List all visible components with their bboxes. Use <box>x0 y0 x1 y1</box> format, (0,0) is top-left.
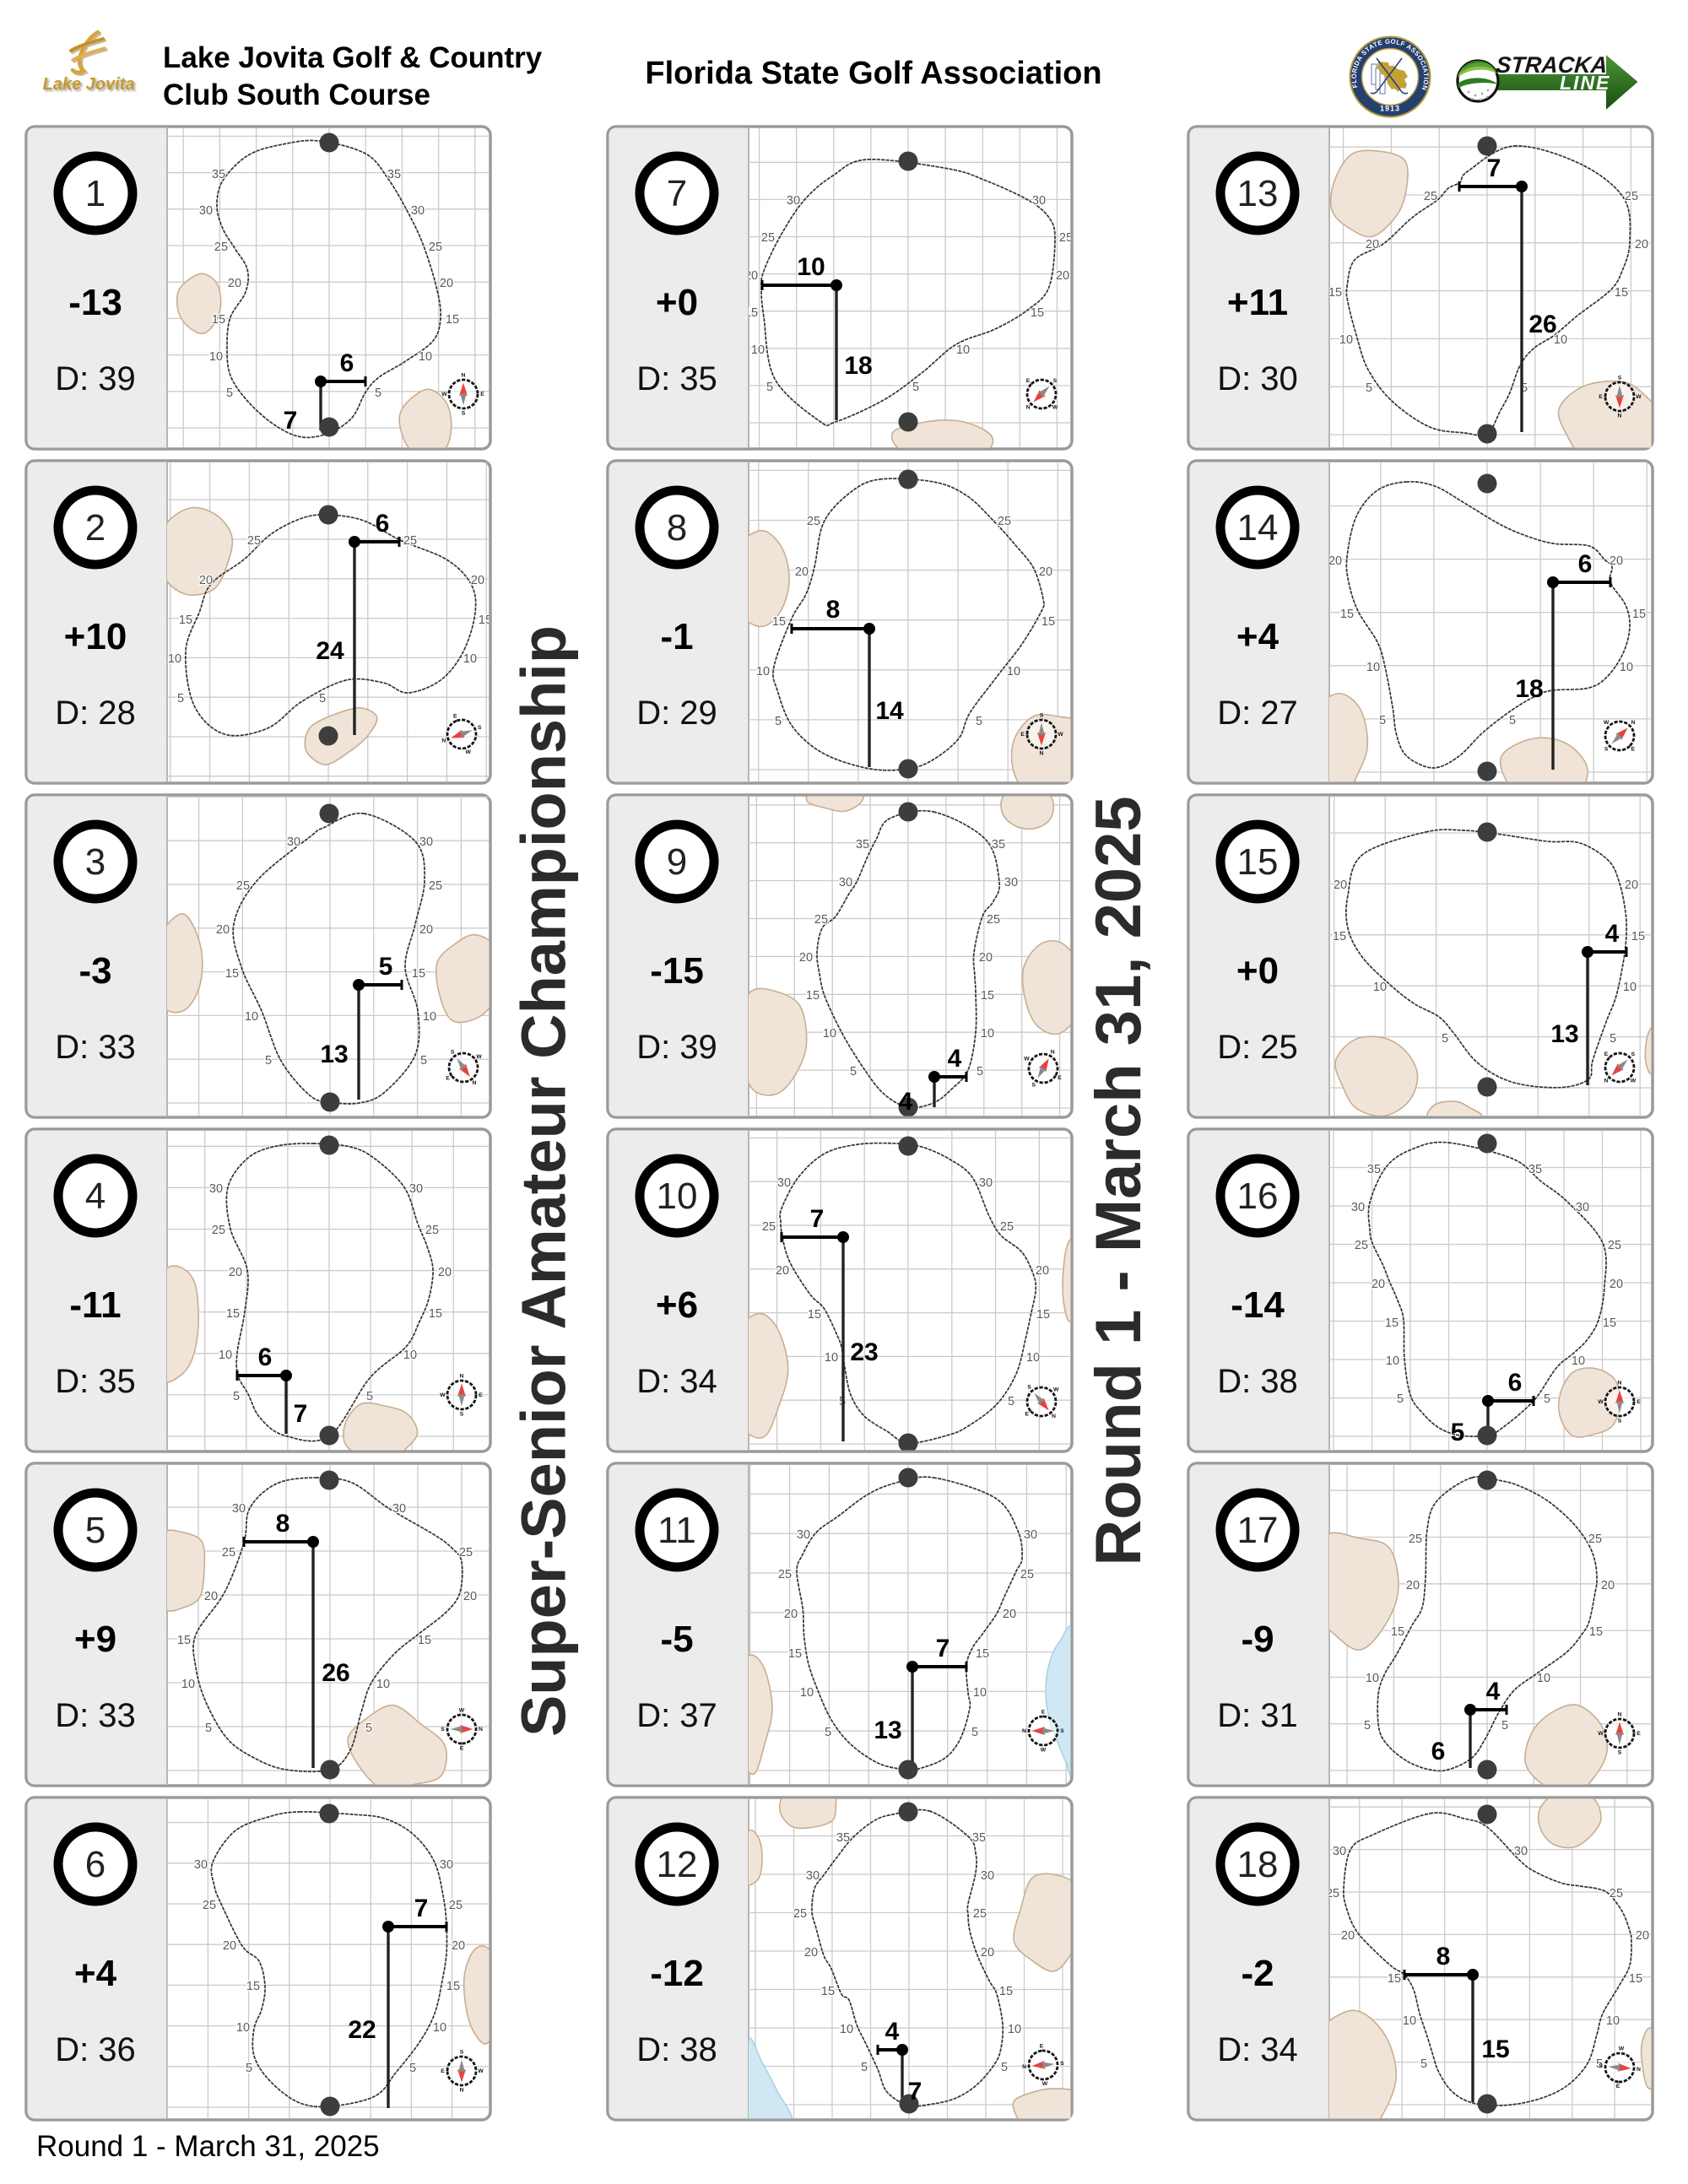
svg-text:35: 35 <box>836 1831 850 1845</box>
svg-text:20: 20 <box>1406 1579 1420 1592</box>
svg-text:N: N <box>462 372 466 378</box>
svg-text:15: 15 <box>1615 286 1628 300</box>
svg-text:15: 15 <box>226 1307 240 1321</box>
svg-text:E: E <box>1637 1399 1641 1405</box>
svg-text:5: 5 <box>177 692 184 705</box>
svg-text:5: 5 <box>775 715 782 728</box>
svg-text:20: 20 <box>463 1590 477 1603</box>
svg-text:D: 39: D: 39 <box>636 1029 717 1066</box>
svg-text:5: 5 <box>1008 1395 1014 1408</box>
svg-text:15: 15 <box>788 1647 802 1661</box>
svg-text:25: 25 <box>1625 190 1638 203</box>
svg-text:8: 8 <box>276 1510 290 1538</box>
svg-text:4: 4 <box>885 2018 900 2046</box>
svg-text:25: 25 <box>1424 190 1437 203</box>
svg-text:E: E <box>479 1392 483 1398</box>
svg-text:5: 5 <box>976 715 982 728</box>
svg-text:15: 15 <box>981 989 994 1003</box>
svg-text:W: W <box>1598 1731 1604 1737</box>
svg-text:5: 5 <box>233 1390 240 1403</box>
svg-text:10: 10 <box>433 2021 446 2035</box>
svg-text:E: E <box>1026 378 1031 384</box>
svg-text:18: 18 <box>1237 1844 1279 1885</box>
svg-text:E: E <box>446 1076 450 1082</box>
svg-text:15: 15 <box>976 1647 989 1661</box>
svg-text:W: W <box>440 1392 446 1398</box>
svg-text:5: 5 <box>1544 1392 1550 1406</box>
svg-text:10: 10 <box>840 2023 853 2036</box>
svg-text:N: N <box>1040 750 1044 756</box>
svg-text:25: 25 <box>1608 1239 1621 1252</box>
svg-text:15: 15 <box>418 1634 431 1647</box>
svg-text:5: 5 <box>1420 2057 1427 2071</box>
svg-text:20: 20 <box>1328 554 1342 568</box>
svg-text:30: 30 <box>797 1528 810 1542</box>
svg-text:25: 25 <box>403 534 417 548</box>
svg-text:5: 5 <box>265 1054 272 1068</box>
svg-text:5: 5 <box>366 1390 373 1403</box>
svg-text:W: W <box>1024 1057 1030 1062</box>
svg-text:30: 30 <box>199 204 213 218</box>
svg-text:15: 15 <box>808 1308 821 1322</box>
svg-text:25: 25 <box>973 1907 987 1921</box>
svg-text:E: E <box>1040 2043 1044 2049</box>
svg-text:E: E <box>1631 747 1636 753</box>
svg-text:S: S <box>1031 1082 1036 1088</box>
svg-text:W: W <box>1631 1078 1637 1084</box>
svg-text:10: 10 <box>181 1678 195 1691</box>
svg-text:25: 25 <box>814 913 828 927</box>
svg-text:W: W <box>441 392 447 397</box>
svg-text:13: 13 <box>1237 173 1279 214</box>
svg-text:15: 15 <box>1589 1625 1603 1639</box>
svg-text:15: 15 <box>1041 615 1055 629</box>
svg-text:7: 7 <box>284 407 298 435</box>
svg-text:30: 30 <box>981 1869 994 1883</box>
svg-text:D: 37: D: 37 <box>636 1697 717 1734</box>
svg-text:S: S <box>1604 747 1609 753</box>
svg-text:10: 10 <box>1386 1354 1399 1368</box>
svg-text:2: 2 <box>85 507 105 549</box>
svg-text:D: 36: D: 36 <box>55 2031 136 2068</box>
svg-text:30: 30 <box>419 835 433 849</box>
svg-text:10: 10 <box>423 1010 436 1024</box>
svg-text:20: 20 <box>1610 1278 1623 1291</box>
svg-text:5: 5 <box>1001 2061 1008 2074</box>
svg-text:10: 10 <box>236 2021 250 2035</box>
svg-text:S: S <box>1618 1418 1622 1424</box>
svg-text:25: 25 <box>425 1224 439 1237</box>
svg-text:S: S <box>1040 712 1044 718</box>
svg-text:W: W <box>1604 720 1610 726</box>
svg-text:15: 15 <box>1333 930 1346 943</box>
svg-text:20: 20 <box>1056 269 1069 283</box>
svg-text:13: 13 <box>874 1716 901 1744</box>
svg-text:12: 12 <box>657 1844 698 1885</box>
svg-text:10: 10 <box>1623 981 1637 994</box>
svg-text:+11: +11 <box>1227 282 1288 323</box>
svg-text:15: 15 <box>1385 1316 1399 1330</box>
svg-text:15: 15 <box>1629 1972 1642 1986</box>
svg-text:5: 5 <box>1610 1032 1616 1046</box>
svg-text:6: 6 <box>258 1343 273 1371</box>
svg-text:W: W <box>1636 394 1642 400</box>
svg-text:10: 10 <box>1007 665 1020 678</box>
svg-text:35: 35 <box>387 168 401 181</box>
svg-text:5: 5 <box>365 1722 372 1735</box>
svg-text:35: 35 <box>972 1831 986 1845</box>
svg-text:10: 10 <box>1339 333 1353 347</box>
svg-text:20: 20 <box>1003 1608 1016 1621</box>
svg-text:Lake Jovita: Lake Jovita <box>43 75 135 93</box>
svg-text:30: 30 <box>979 1176 993 1190</box>
svg-text:15: 15 <box>429 1307 442 1321</box>
svg-text:5: 5 <box>85 1510 105 1551</box>
svg-text:35: 35 <box>212 168 225 181</box>
svg-text:7: 7 <box>414 1895 429 1922</box>
svg-text:4: 4 <box>1486 1678 1501 1706</box>
svg-text:N: N <box>1604 1078 1609 1084</box>
svg-text:15: 15 <box>1631 930 1645 943</box>
svg-text:15: 15 <box>806 989 820 1003</box>
svg-text:D: 35: D: 35 <box>55 1363 136 1400</box>
svg-text:N: N <box>460 1373 464 1379</box>
svg-text:9: 9 <box>667 841 687 883</box>
svg-text:15: 15 <box>1328 286 1342 300</box>
svg-text:S: S <box>460 1411 464 1417</box>
svg-text:D: 35: D: 35 <box>636 360 717 397</box>
svg-text:30: 30 <box>777 1176 791 1190</box>
svg-text:11: 11 <box>657 1510 696 1551</box>
svg-text:5: 5 <box>319 692 326 705</box>
svg-text:26: 26 <box>322 1659 349 1687</box>
svg-text:25: 25 <box>236 879 250 893</box>
svg-text:15: 15 <box>1391 1625 1404 1639</box>
svg-text:20: 20 <box>440 277 453 290</box>
svg-text:D: 33: D: 33 <box>55 1697 136 1734</box>
svg-text:30: 30 <box>411 204 425 218</box>
svg-text:20: 20 <box>204 1590 218 1603</box>
svg-text:5: 5 <box>861 2061 868 2074</box>
svg-text:S: S <box>441 1727 445 1733</box>
svg-text:10: 10 <box>219 1349 232 1362</box>
svg-text:D: 28: D: 28 <box>55 695 136 732</box>
svg-text:14: 14 <box>875 697 904 725</box>
svg-text:D: 34: D: 34 <box>636 1363 717 1400</box>
svg-text:10: 10 <box>657 1176 698 1217</box>
svg-text:-12: -12 <box>650 1953 704 1994</box>
svg-text:S: S <box>1027 1385 1031 1391</box>
svg-text:30: 30 <box>1024 1528 1037 1542</box>
svg-text:30: 30 <box>232 1502 246 1516</box>
svg-text:5: 5 <box>1451 1419 1465 1446</box>
svg-text:4: 4 <box>85 1176 105 1217</box>
svg-text:N: N <box>1618 1711 1622 1717</box>
svg-text:25: 25 <box>212 1224 225 1237</box>
svg-text:E: E <box>441 2068 445 2074</box>
svg-text:25: 25 <box>247 534 261 548</box>
svg-text:7: 7 <box>810 1205 825 1233</box>
svg-text:7: 7 <box>936 1635 950 1662</box>
svg-text:30: 30 <box>287 835 300 849</box>
svg-text:25: 25 <box>1588 1533 1602 1546</box>
svg-text:10: 10 <box>1606 2014 1620 2028</box>
svg-text:E: E <box>460 1745 464 1751</box>
svg-text:15: 15 <box>999 1985 1013 1998</box>
svg-text:E: E <box>1041 1709 1046 1715</box>
svg-text:D: 25: D: 25 <box>1217 1029 1298 1066</box>
svg-text:S: S <box>1060 1728 1064 1734</box>
svg-text:+6: +6 <box>656 1284 698 1326</box>
svg-text:S: S <box>451 1049 455 1055</box>
svg-text:30: 30 <box>1576 1201 1589 1214</box>
svg-text:20: 20 <box>1610 554 1623 568</box>
svg-text:25: 25 <box>762 1220 776 1234</box>
svg-text:7: 7 <box>908 2078 922 2106</box>
svg-text:25: 25 <box>429 241 442 254</box>
svg-text:25: 25 <box>778 1568 792 1581</box>
svg-text:17: 17 <box>1237 1510 1279 1551</box>
svg-text:D: 34: D: 34 <box>1217 2031 1298 2068</box>
svg-text:10: 10 <box>1366 1672 1379 1685</box>
svg-text:N: N <box>479 1727 483 1733</box>
svg-text:N: N <box>1618 413 1622 419</box>
svg-text:10: 10 <box>209 350 223 364</box>
svg-text:+4: +4 <box>1236 616 1280 657</box>
svg-text:30: 30 <box>1004 876 1018 889</box>
svg-text:10: 10 <box>1572 1354 1585 1368</box>
svg-text:35: 35 <box>1528 1163 1542 1176</box>
svg-text:S: S <box>1618 1749 1622 1755</box>
svg-text:10: 10 <box>823 1027 836 1041</box>
svg-text:5: 5 <box>379 953 393 981</box>
svg-text:-2: -2 <box>1241 1953 1274 1994</box>
svg-text:20: 20 <box>981 1946 994 1960</box>
svg-text:5: 5 <box>971 1726 978 1739</box>
svg-text:D: 31: D: 31 <box>1217 1697 1298 1734</box>
svg-text:15: 15 <box>821 1985 835 1998</box>
svg-text:20: 20 <box>1039 565 1052 579</box>
svg-text:20: 20 <box>229 1266 242 1279</box>
svg-text:4: 4 <box>948 1045 962 1073</box>
svg-text:1: 1 <box>85 173 105 214</box>
svg-text:W: W <box>1598 1399 1604 1405</box>
svg-text:5: 5 <box>420 1054 427 1068</box>
svg-text:25: 25 <box>203 1899 216 1912</box>
svg-text:-1: -1 <box>660 616 693 657</box>
svg-text:10: 10 <box>825 1351 838 1365</box>
svg-text:E: E <box>1599 394 1603 400</box>
svg-text:1913: 1913 <box>1380 105 1400 113</box>
svg-text:25: 25 <box>1409 1533 1422 1546</box>
svg-text:E: E <box>1616 2084 1620 2089</box>
svg-text:20: 20 <box>1366 238 1379 251</box>
svg-text:20: 20 <box>452 1939 465 1953</box>
svg-text:13: 13 <box>1550 1020 1578 1048</box>
svg-text:14: 14 <box>1237 507 1279 549</box>
svg-text:D: 30: D: 30 <box>1217 360 1298 397</box>
svg-text:10: 10 <box>463 652 477 666</box>
svg-text:25: 25 <box>449 1899 463 1912</box>
svg-text:6: 6 <box>340 349 354 377</box>
svg-text:N: N <box>1026 405 1031 411</box>
svg-text:N: N <box>441 738 446 743</box>
svg-text:W: W <box>1053 1387 1059 1392</box>
svg-text:10: 10 <box>1008 2023 1021 2036</box>
svg-text:W: W <box>1058 732 1063 738</box>
svg-text:10: 10 <box>973 1686 987 1700</box>
svg-text:D: 29: D: 29 <box>636 695 717 732</box>
svg-text:18: 18 <box>1515 675 1543 703</box>
svg-text:N: N <box>1051 1049 1055 1055</box>
svg-text:20: 20 <box>799 951 813 965</box>
svg-text:8: 8 <box>826 596 841 624</box>
svg-text:5: 5 <box>375 387 381 400</box>
svg-text:20: 20 <box>795 565 809 579</box>
svg-text:30: 30 <box>787 194 800 208</box>
svg-text:D: 38: D: 38 <box>1217 1363 1298 1400</box>
svg-text:15: 15 <box>246 1980 260 1993</box>
svg-text:20: 20 <box>471 574 484 587</box>
svg-text:5: 5 <box>1509 714 1516 727</box>
svg-text:30: 30 <box>440 1858 453 1872</box>
svg-text:E: E <box>480 392 484 397</box>
svg-text:20: 20 <box>1636 1929 1649 1943</box>
svg-text:10: 10 <box>1620 661 1633 674</box>
svg-text:W: W <box>459 1707 465 1713</box>
svg-text:N: N <box>1052 1414 1056 1419</box>
svg-text:22: 22 <box>348 2016 376 2044</box>
svg-text:20: 20 <box>419 923 433 937</box>
svg-text:7: 7 <box>1487 154 1501 182</box>
svg-text:25: 25 <box>761 231 775 245</box>
svg-text:25: 25 <box>987 913 1000 927</box>
svg-text:10: 10 <box>797 253 825 281</box>
svg-text:S: S <box>460 2049 464 2055</box>
svg-text:6: 6 <box>376 510 390 538</box>
svg-text:10: 10 <box>419 350 432 364</box>
svg-text:N: N <box>1618 1380 1622 1386</box>
svg-text:W: W <box>476 1054 482 1060</box>
svg-text:20: 20 <box>979 951 993 965</box>
svg-text:7: 7 <box>667 173 687 214</box>
svg-text:30: 30 <box>806 1869 820 1883</box>
svg-text:D: 38: D: 38 <box>636 2031 717 2068</box>
svg-text:35: 35 <box>1367 1163 1381 1176</box>
svg-text:15: 15 <box>1481 2035 1509 2063</box>
svg-text:18: 18 <box>844 352 872 380</box>
svg-text:N: N <box>1631 720 1635 726</box>
svg-text:20: 20 <box>223 1939 236 1953</box>
svg-text:20: 20 <box>1036 1264 1049 1278</box>
svg-text:15: 15 <box>1237 841 1279 883</box>
svg-text:25: 25 <box>807 515 820 528</box>
svg-text:N: N <box>460 2087 464 2093</box>
svg-text:15: 15 <box>225 967 239 981</box>
svg-text:W: W <box>465 749 471 755</box>
svg-text:10: 10 <box>403 1349 417 1362</box>
svg-text:16: 16 <box>1237 1176 1279 1217</box>
svg-text:10: 10 <box>1537 1672 1550 1685</box>
svg-text:D: 27: D: 27 <box>1217 695 1298 732</box>
svg-text:30: 30 <box>194 1858 208 1872</box>
svg-text:15: 15 <box>212 313 225 327</box>
svg-text:25: 25 <box>1610 1887 1623 1900</box>
svg-text:E: E <box>1025 1411 1029 1417</box>
svg-text:10: 10 <box>751 343 765 357</box>
svg-text:25: 25 <box>459 1546 473 1560</box>
svg-text:5: 5 <box>850 1065 857 1078</box>
svg-text:15: 15 <box>412 967 425 981</box>
svg-text:S: S <box>1618 375 1622 381</box>
svg-text:D: 33: D: 33 <box>55 1029 136 1066</box>
svg-text:5: 5 <box>1442 1032 1448 1046</box>
svg-text:-9: -9 <box>1241 1619 1274 1660</box>
svg-text:30: 30 <box>1351 1201 1365 1214</box>
svg-text:10: 10 <box>756 665 770 678</box>
svg-text:E: E <box>453 714 457 720</box>
svg-text:N: N <box>1022 2064 1026 2070</box>
svg-text:5: 5 <box>912 381 919 394</box>
svg-text:8: 8 <box>1436 1943 1451 1970</box>
svg-text:4: 4 <box>1605 920 1620 948</box>
svg-text:20: 20 <box>438 1266 452 1279</box>
svg-text:+0: +0 <box>1236 950 1279 992</box>
svg-text:4: 4 <box>899 1088 913 1116</box>
svg-text:20: 20 <box>1635 238 1648 251</box>
svg-text:+0: +0 <box>656 282 698 323</box>
svg-text:5: 5 <box>246 2062 252 2075</box>
svg-text:+4: +4 <box>74 1953 117 1994</box>
svg-text:30: 30 <box>392 1502 406 1516</box>
svg-text:15: 15 <box>446 313 459 327</box>
svg-text:S: S <box>1599 2063 1603 2069</box>
svg-text:5: 5 <box>1364 1719 1371 1733</box>
svg-text:3: 3 <box>85 841 105 883</box>
svg-text:6: 6 <box>1578 550 1593 578</box>
svg-text:10: 10 <box>956 343 970 357</box>
svg-text:30: 30 <box>209 1182 223 1196</box>
svg-text:20: 20 <box>1341 1929 1355 1943</box>
svg-text:15: 15 <box>179 614 192 627</box>
svg-text:15: 15 <box>1388 1972 1401 1986</box>
svg-text:5: 5 <box>409 2062 416 2075</box>
svg-text:W: W <box>478 2068 484 2074</box>
svg-text:5: 5 <box>1397 1392 1404 1406</box>
svg-text:10: 10 <box>1373 981 1387 994</box>
svg-text:30: 30 <box>1333 1845 1346 1858</box>
svg-text:15: 15 <box>772 615 786 629</box>
svg-text:5: 5 <box>226 387 233 400</box>
svg-text:10: 10 <box>245 1010 258 1024</box>
svg-text:15: 15 <box>1340 608 1354 621</box>
svg-text:N: N <box>472 1080 476 1086</box>
svg-text:20: 20 <box>784 1608 798 1621</box>
svg-text:25: 25 <box>1355 1239 1368 1252</box>
svg-text:10: 10 <box>1403 2014 1416 2028</box>
svg-text:E: E <box>1637 1731 1641 1737</box>
svg-text:5: 5 <box>1501 1719 1508 1733</box>
svg-text:S: S <box>1053 378 1058 384</box>
svg-text:25: 25 <box>793 1907 807 1921</box>
svg-text:-5: -5 <box>660 1619 693 1660</box>
svg-text:35: 35 <box>992 838 1005 851</box>
svg-text:W: W <box>1052 405 1058 411</box>
svg-text:20: 20 <box>776 1264 789 1278</box>
svg-text:-11: -11 <box>69 1284 121 1326</box>
svg-text:+9: +9 <box>74 1619 116 1660</box>
svg-text:15: 15 <box>446 1980 460 1993</box>
